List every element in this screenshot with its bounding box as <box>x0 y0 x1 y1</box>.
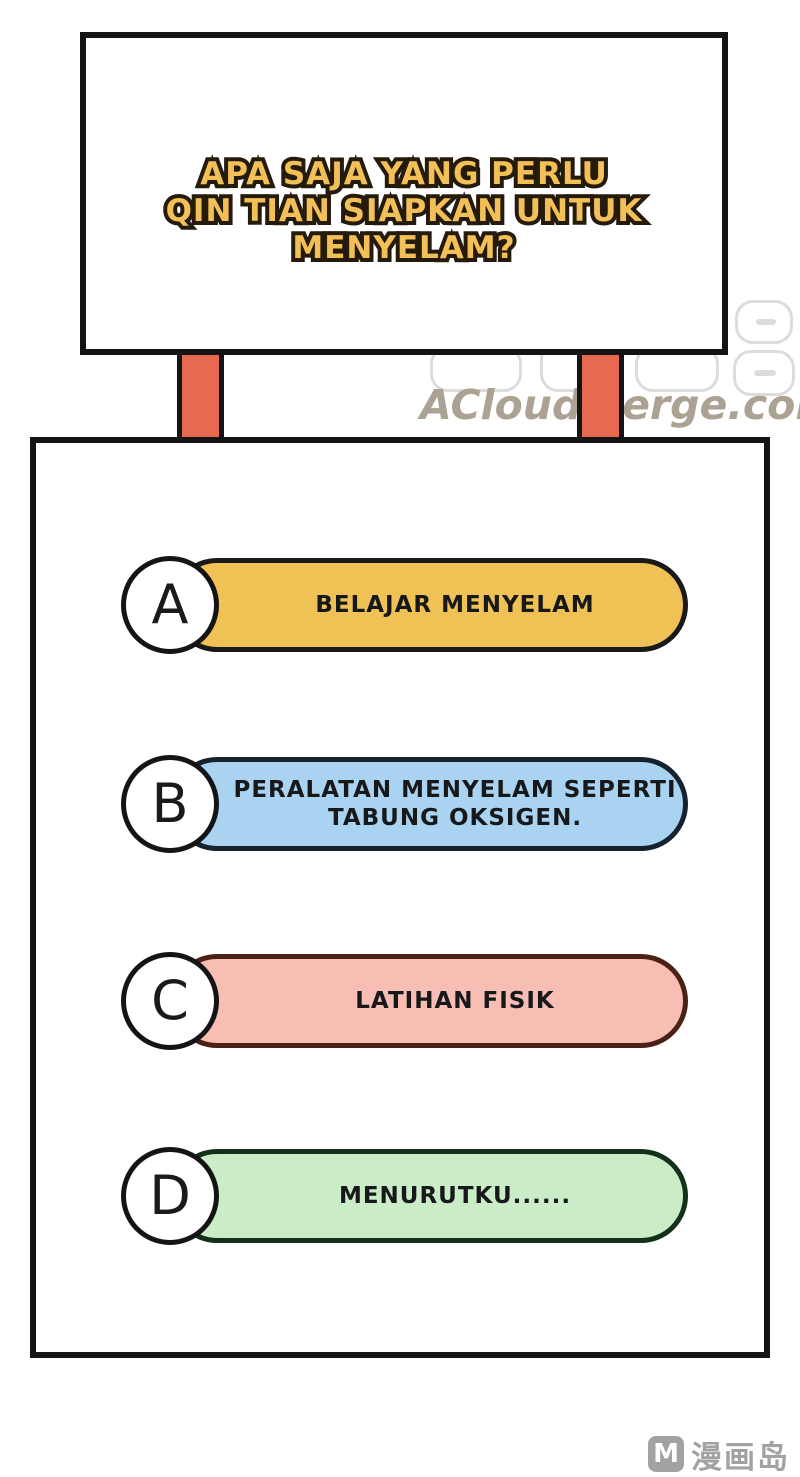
option-d[interactable]: MENURUTKU...... D <box>121 1147 688 1245</box>
watermark-blob <box>735 300 793 344</box>
option-d-letter-badge: D <box>121 1147 219 1245</box>
question-sign: APA SAJA YANG PERLU QIN TIAN SIAPKAN UNT… <box>80 32 728 355</box>
sign-post-right <box>577 350 624 443</box>
option-d-text-line-1: MENURUTKU...... <box>339 1182 571 1210</box>
option-a-label: BELAJAR MENYELAM <box>175 563 683 647</box>
option-c[interactable]: LATIHAN FISIK C <box>121 952 688 1050</box>
option-b[interactable]: PERALATAN MENYELAM SEPERTI TABUNG OKSIGE… <box>121 755 688 853</box>
option-c-text-line-1: LATIHAN FISIK <box>355 987 554 1015</box>
option-d-letter: D <box>149 1169 191 1223</box>
question-title-line-3: MENYELAM? <box>86 230 722 267</box>
option-d-label: MENURUTKU...... <box>175 1154 683 1238</box>
option-b-label: PERALATAN MENYELAM SEPERTI TABUNG OKSIGE… <box>175 762 683 846</box>
option-b-pill: PERALATAN MENYELAM SEPERTI TABUNG OKSIGE… <box>170 757 688 851</box>
option-a-pill: BELAJAR MENYELAM <box>170 558 688 652</box>
option-c-letter: C <box>151 974 189 1028</box>
option-b-letter-badge: B <box>121 755 219 853</box>
option-c-label: LATIHAN FISIK <box>175 959 683 1043</box>
option-a-letter: A <box>152 578 189 632</box>
option-b-text-line-2: TABUNG OKSIGEN. <box>328 804 582 832</box>
option-b-text-line-1: PERALATAN MENYELAM SEPERTI <box>233 776 676 804</box>
option-a[interactable]: BELAJAR MENYELAM A <box>121 556 688 654</box>
option-a-text-line-1: BELAJAR MENYELAM <box>315 591 594 619</box>
manhuadao-logo: M 漫画岛 <box>648 1436 790 1472</box>
manhuadao-m-icon: M <box>648 1436 684 1472</box>
option-a-letter-badge: A <box>121 556 219 654</box>
manhuadao-cn-text: 漫画岛 <box>691 1432 790 1477</box>
comic-page: ACloudMerge.com APA SAJA YANG PERLU QIN … <box>0 0 800 1477</box>
option-b-letter: B <box>151 777 188 831</box>
question-title-line-1: APA SAJA YANG PERLU <box>86 156 722 193</box>
question-title: APA SAJA YANG PERLU QIN TIAN SIAPKAN UNT… <box>86 156 722 267</box>
option-d-pill: MENURUTKU...... <box>170 1149 688 1243</box>
manhuadao-m-letter: M <box>653 1441 679 1467</box>
question-title-line-2: QIN TIAN SIAPKAN UNTUK <box>86 193 722 230</box>
option-c-letter-badge: C <box>121 952 219 1050</box>
option-c-pill: LATIHAN FISIK <box>170 954 688 1048</box>
sign-post-left <box>177 350 224 443</box>
